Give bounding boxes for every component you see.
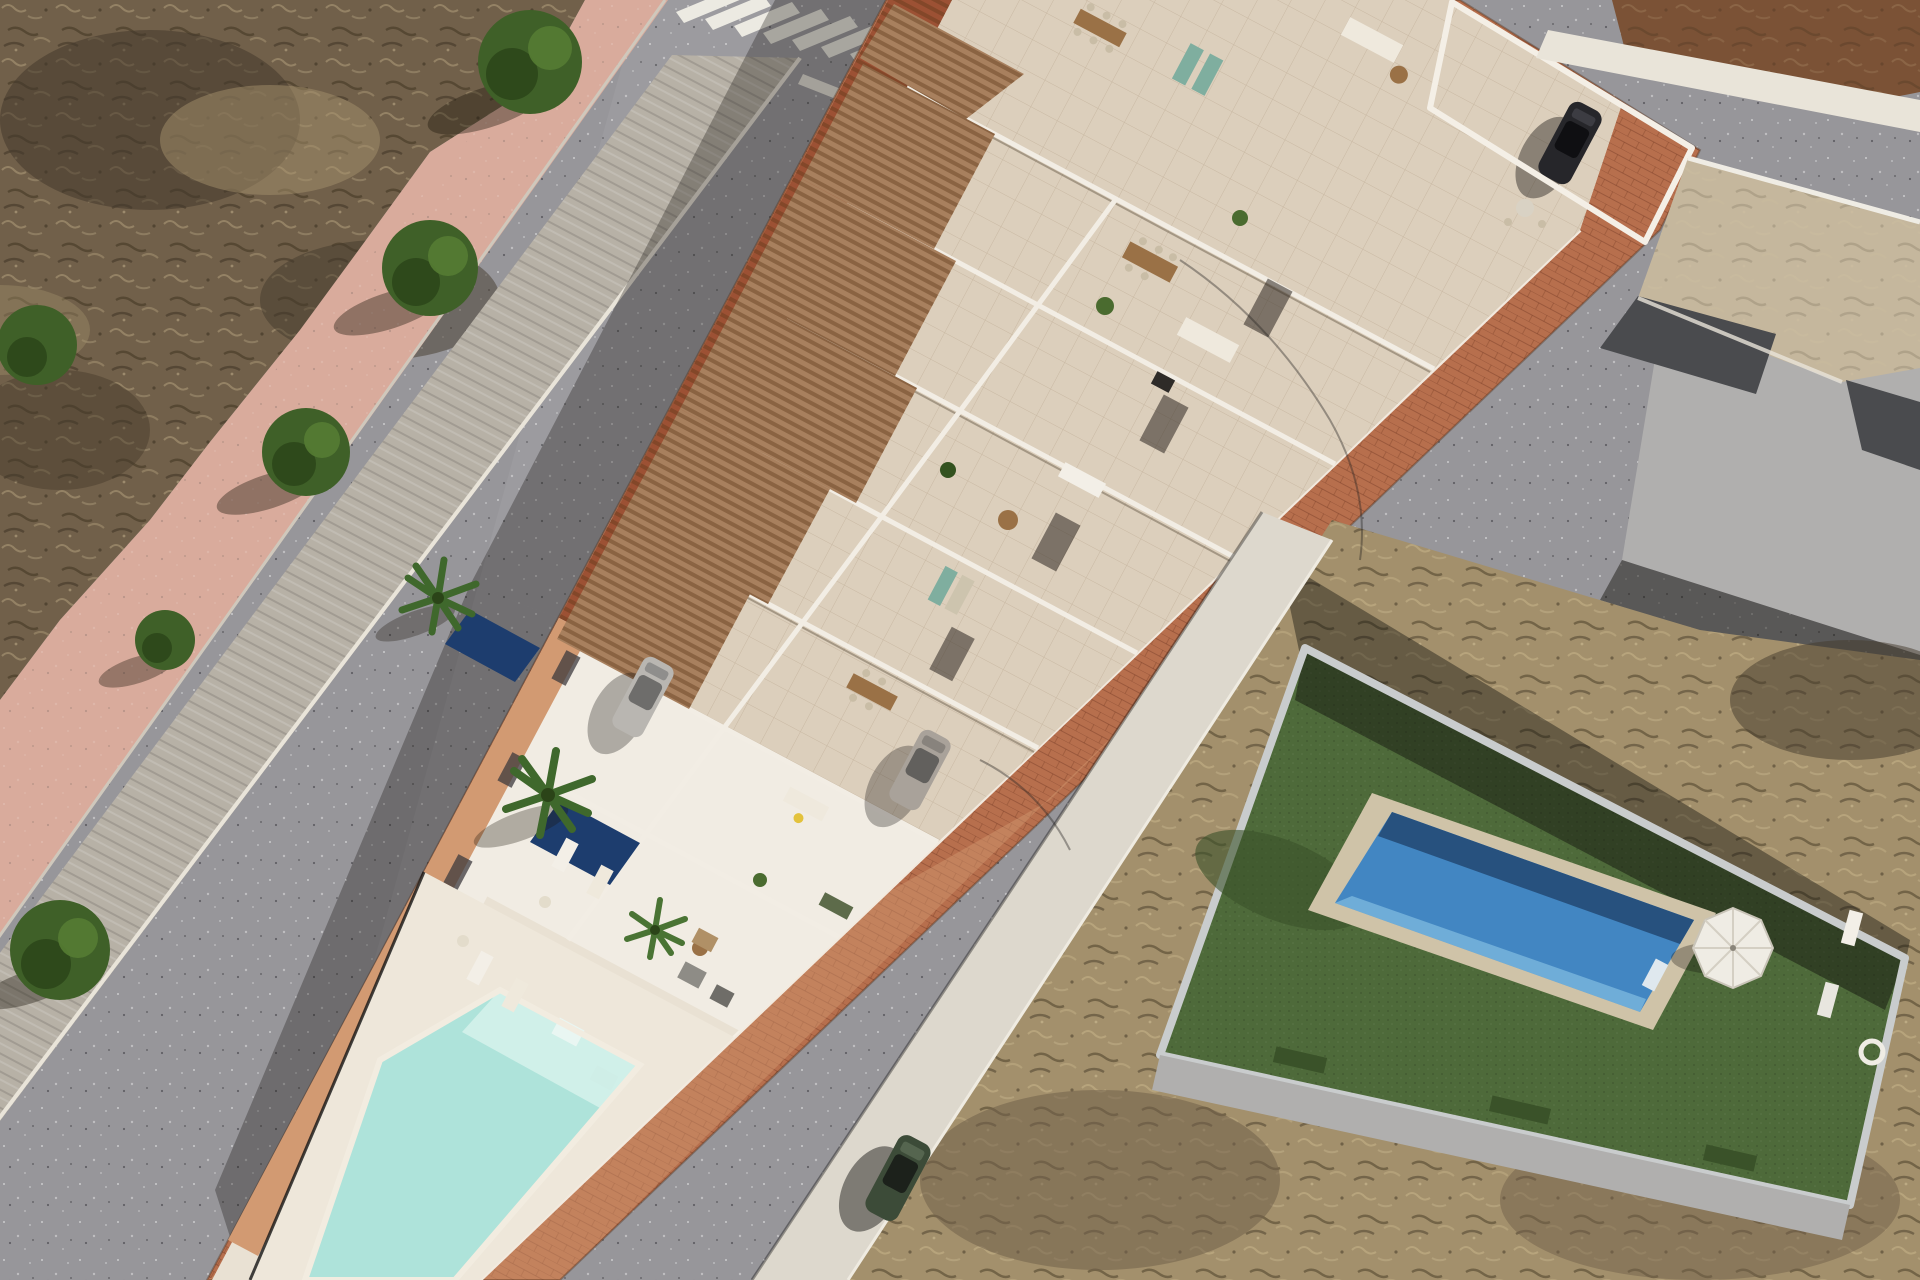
potted-plant — [753, 873, 767, 887]
aerial-render-image — [0, 0, 1920, 1280]
bistro-table — [1516, 199, 1534, 217]
tree-canopy-light — [304, 422, 340, 458]
scene-svg — [0, 0, 1920, 1280]
tree — [0, 305, 77, 385]
bistro-chair — [1504, 218, 1512, 226]
tree-canopy-light — [58, 918, 98, 958]
tree-canopy-shade — [142, 633, 172, 663]
potted-plant — [940, 462, 956, 478]
scrub-patch — [920, 1090, 1280, 1270]
scrub-light-patch — [160, 85, 380, 195]
potted-plant — [1096, 297, 1114, 315]
potted-plant — [1232, 210, 1248, 226]
bistro-chair — [1538, 220, 1546, 228]
tree-canopy-light — [528, 26, 572, 70]
tree-canopy-shade — [7, 337, 47, 377]
round-table — [998, 510, 1018, 530]
tree-canopy-light — [428, 236, 468, 276]
